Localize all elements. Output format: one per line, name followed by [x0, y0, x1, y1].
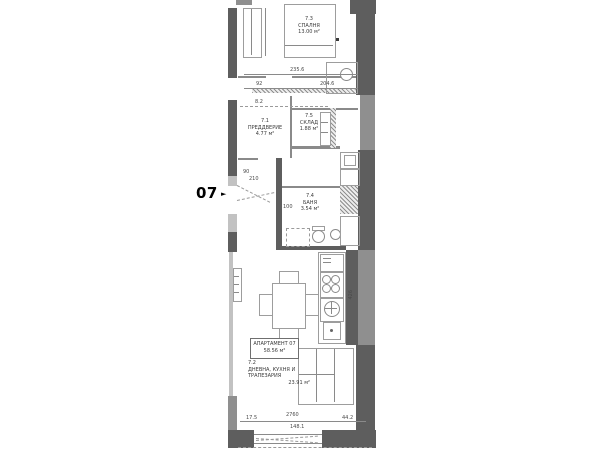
chair-left — [259, 294, 273, 316]
dim-niche: 8.2 — [255, 99, 263, 105]
shaft-hatch — [340, 186, 358, 214]
dim-bedroom-width-inner: 204.6 — [320, 81, 334, 87]
radiator-fin-3 — [234, 292, 239, 293]
stove-burner-2 — [331, 275, 340, 284]
fridge-line-2 — [323, 262, 331, 263]
wall-left-corridor — [228, 232, 237, 252]
chair-top — [279, 271, 299, 284]
toilet-icon — [312, 230, 325, 243]
wall-right-shaft — [358, 150, 375, 250]
fridge-icon — [320, 254, 344, 272]
shaft-box-2 — [340, 169, 360, 186]
wall-storage-top — [292, 108, 358, 110]
floorplan-canvas: 7.3 СПАЛНЯ 13.00 м² 235.6 204.6 92 8.2 7… — [0, 0, 600, 450]
vestibule-area: 4.77 м² — [242, 131, 288, 138]
shower-icon — [286, 228, 310, 247]
stove-burner-3 — [322, 284, 331, 293]
wall-bedroom-bottom-left — [238, 76, 266, 78]
fridge-line-1 — [323, 258, 331, 259]
wall-bathroom-top — [282, 186, 342, 188]
wall-corner-bottom-right — [322, 430, 376, 448]
kitchen-small-appliance-dot — [330, 329, 333, 332]
sofa-line-1 — [316, 349, 317, 402]
radiator-fin-2 — [234, 284, 239, 285]
room-label-bedroom: 7.3 СПАЛНЯ 13.00 м² — [288, 16, 330, 36]
room-label-bathroom: 7.4 БАНЯ 3.54 м² — [292, 193, 328, 213]
wall-left-living-lower — [228, 396, 237, 432]
dim-window-width: 148.1 — [290, 424, 304, 430]
wall-left-bedroom — [228, 8, 237, 78]
dim-wall-offset: 92 — [256, 81, 262, 87]
wardrobe-dim-line — [265, 8, 266, 56]
radiator — [233, 268, 242, 302]
room-label-living: 7.2 ДНЕВНА, КУХНЯ И ТРАПЕЗАРИЯ 23.91 м² — [248, 360, 310, 386]
dim-door-height: 210 — [249, 176, 259, 182]
dim-terrace-width: 2760 — [286, 412, 299, 418]
dim-kitchen-length: 426 — [348, 290, 354, 300]
kitchen-sink-icon — [324, 301, 340, 317]
window-bottom-outer — [254, 434, 322, 435]
wall-left-vestibule — [228, 100, 237, 176]
wall-top-left-stub — [236, 0, 252, 5]
living-area: 23.91 м² — [248, 380, 310, 387]
apartment-label-box: АПАРТАМЕНТ 07 58.56 м² — [250, 338, 299, 359]
dining-table — [272, 283, 306, 329]
wardrobe-divider — [251, 9, 252, 55]
wall-right-kitchen-outer — [358, 250, 375, 345]
terrace-edge-dashed — [238, 447, 372, 448]
storage-shelf-line-2 — [321, 132, 328, 133]
apartment-title: АПАРТАМЕНТ 07 — [251, 341, 298, 348]
wall-corner-bottom-left — [228, 430, 254, 448]
apartment-area: 58.56 м² — [251, 348, 298, 355]
stove-burner-1 — [322, 275, 331, 284]
radiator-fin-1 — [234, 276, 239, 277]
section-dash-line — [240, 106, 328, 107]
storage-shelf — [320, 112, 331, 146]
wardrobe — [243, 8, 262, 58]
bathroom-area: 3.54 м² — [292, 206, 328, 213]
wall-right-storage — [360, 95, 375, 150]
shaft-box-3 — [340, 216, 360, 246]
electrical-symbol — [336, 38, 339, 41]
bedroom-area: 13.00 м² — [288, 29, 330, 36]
bed-footline — [285, 45, 333, 46]
kitchen-sink-cross-v — [331, 302, 332, 314]
unit-marker-arrow-icon: ► — [221, 190, 226, 198]
chair-right — [305, 294, 319, 316]
dim-line-top-1 — [244, 74, 358, 75]
sofa-line-2 — [334, 349, 335, 402]
window-bottom-inner — [254, 443, 322, 444]
room-label-vestibule: 7.1 ПРЕДДВЕРИЕ 4.77 м² — [242, 118, 288, 138]
wall-right-living — [356, 345, 375, 432]
shaft-box-1-inner — [344, 155, 356, 166]
unit-marker-number: 07 — [196, 184, 218, 202]
wall-left-door-jamb-top — [228, 176, 237, 186]
wall-right-bedroom — [356, 0, 375, 95]
stove-burner-4 — [331, 284, 340, 293]
dim-line-bottom — [240, 421, 366, 422]
dim-door-width: 90 — [243, 169, 249, 175]
dim-line-top-2 — [244, 88, 358, 89]
wall-vestibule-bottom — [238, 158, 258, 160]
dim-bedroom-width: 235.6 — [290, 67, 304, 73]
wall-bathroom-left — [276, 158, 282, 250]
storage-shelf-line-1 — [321, 122, 328, 123]
wall-left-door-jamb-bottom — [228, 214, 237, 232]
